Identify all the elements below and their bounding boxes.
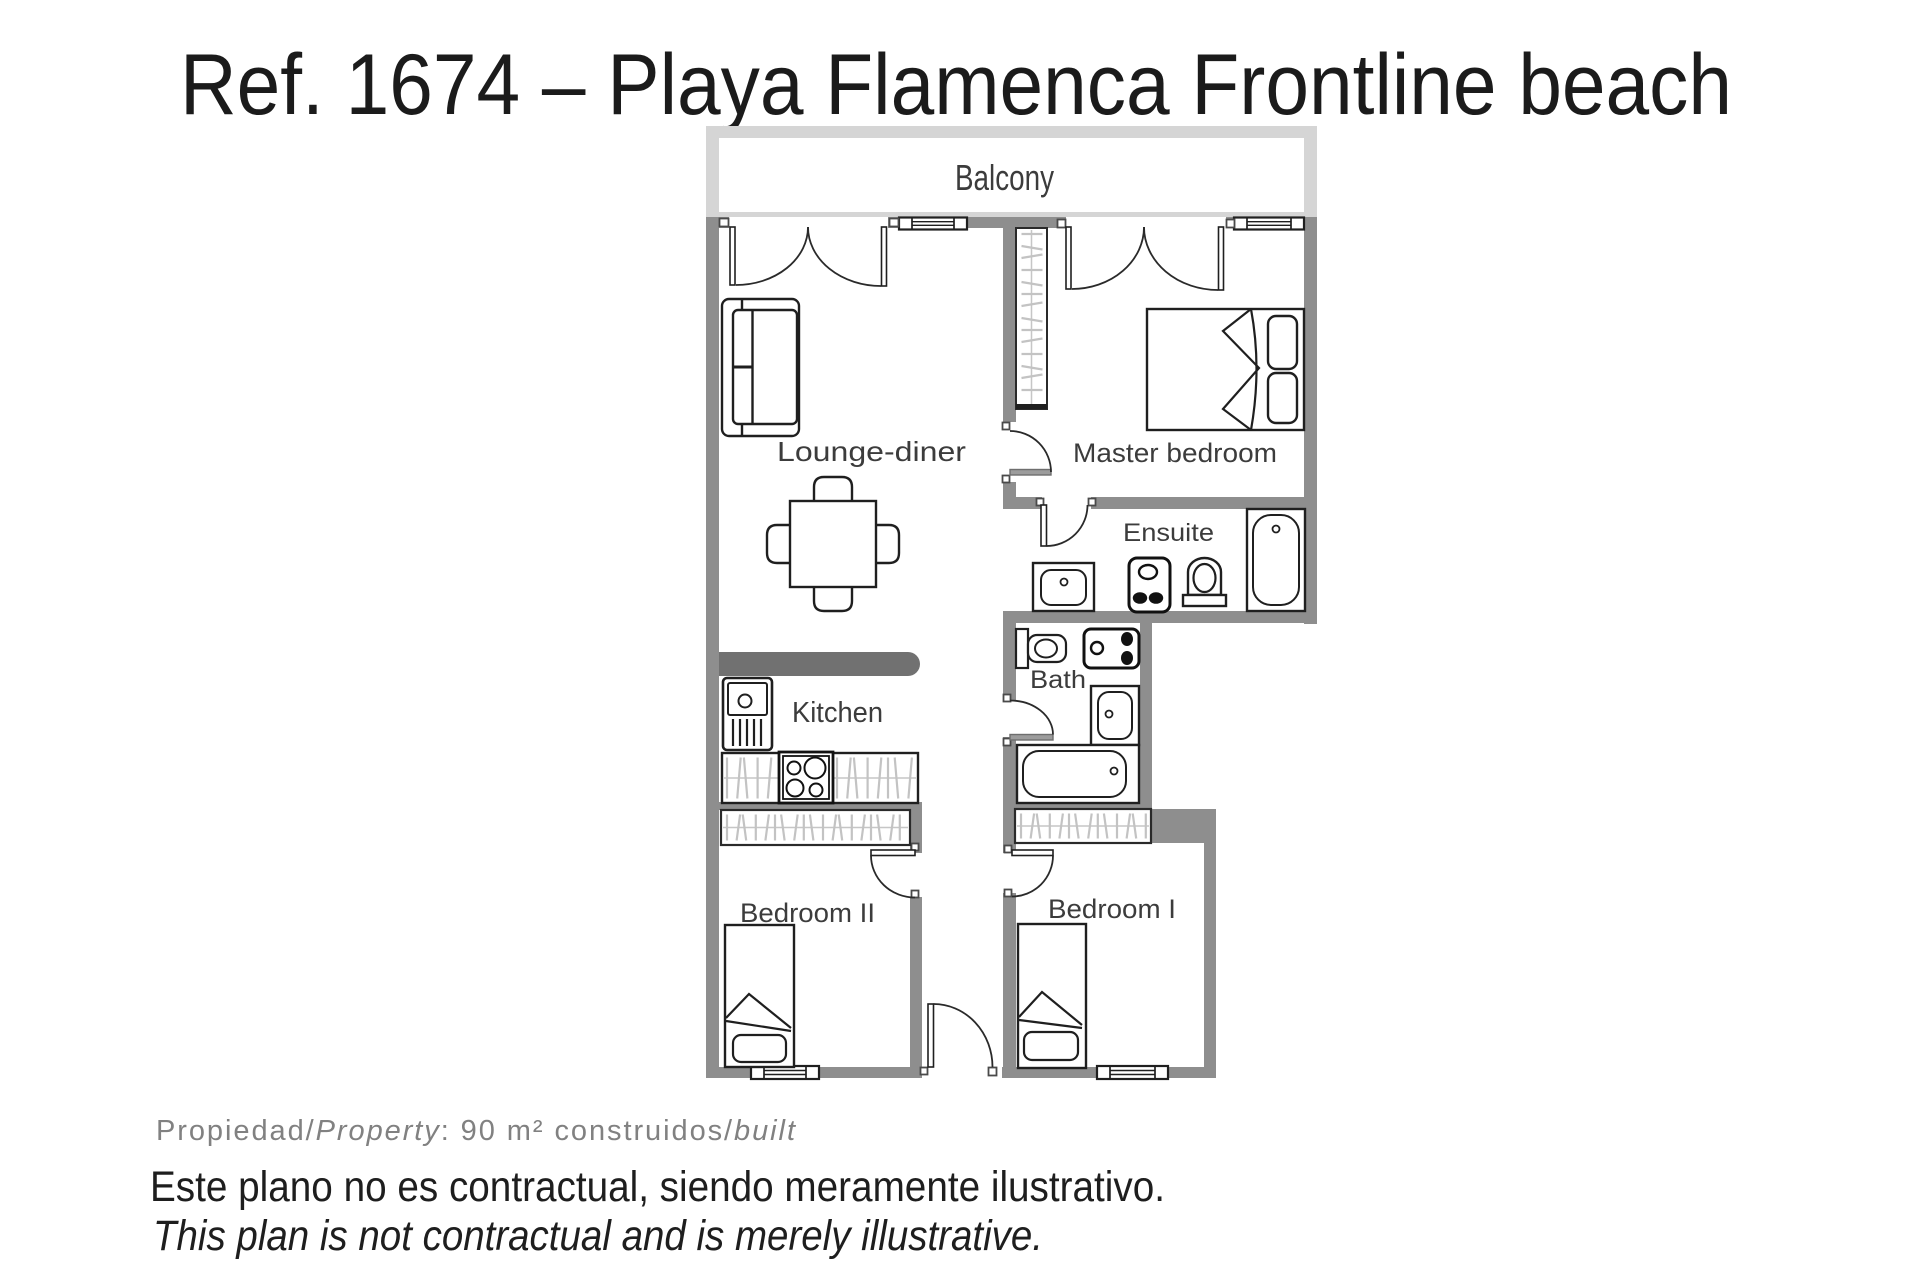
svg-text:Bedroom I: Bedroom I [1048,894,1176,924]
svg-text:Ensuite: Ensuite [1123,519,1214,547]
svg-text:Lounge-diner: Lounge-diner [777,436,966,467]
svg-text:Balcony: Balcony [955,157,1054,198]
svg-text:Ref. 1674 – Playa Flamenca Fro: Ref. 1674 – Playa Flamenca Frontline bea… [180,37,1732,133]
svg-text:Kitchen: Kitchen [792,697,883,729]
svg-text:Bedroom II: Bedroom II [740,898,875,928]
svg-text:Master bedroom: Master bedroom [1073,438,1277,468]
svg-text:Bath: Bath [1030,666,1086,694]
svg-text:This plan is not contractual a: This plan is not contractual and is mere… [153,1212,1043,1260]
svg-text:Este plano no es contractual,: Este plano no es contractual, siendo mer… [150,1163,1165,1211]
svg-text:Propiedad/Property: 90 m² cons: Propiedad/Property: 90 m² construidos/bu… [156,1115,797,1147]
